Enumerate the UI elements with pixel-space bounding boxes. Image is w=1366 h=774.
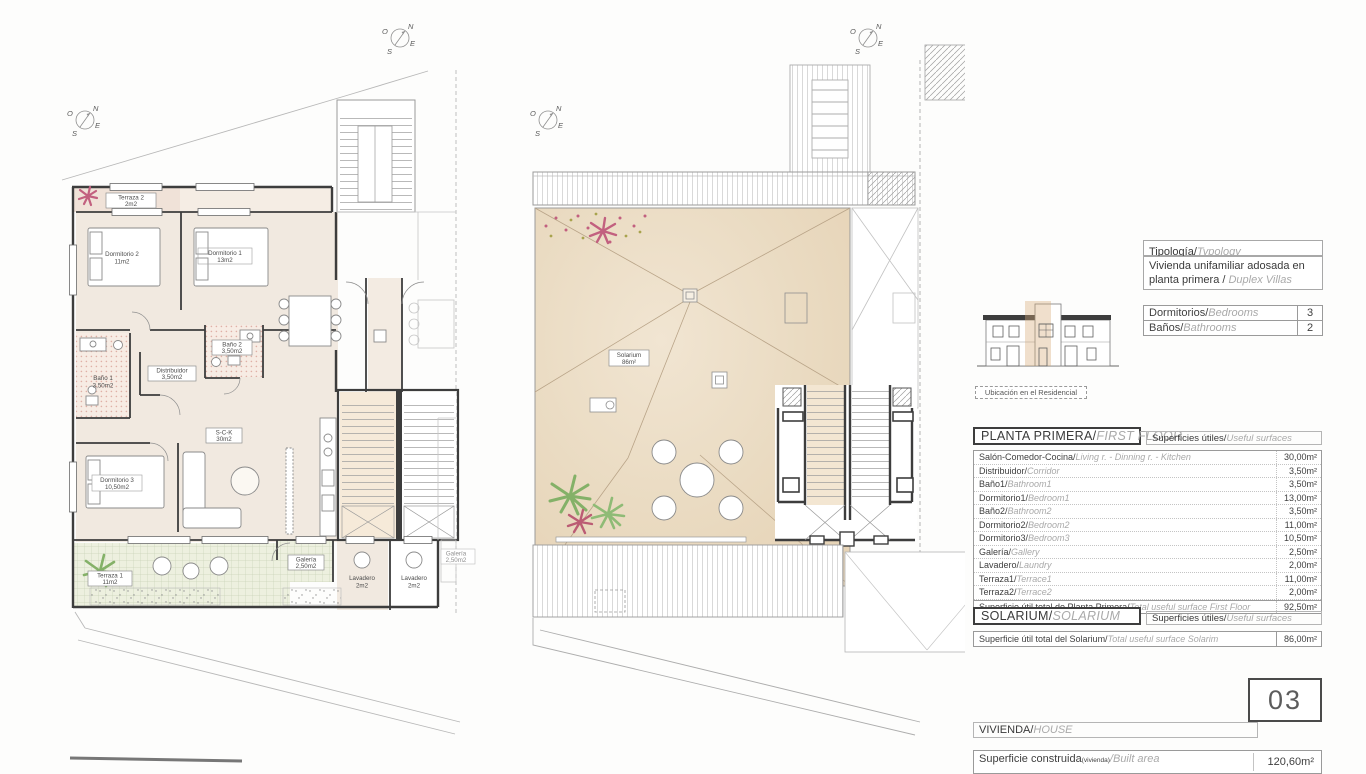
table-row: Galería/Gallery2,50m² (974, 546, 1321, 560)
shaft-hatch-left (783, 388, 801, 406)
house-header-es: VIVIENDA/ (979, 724, 1033, 736)
label-terraza1: Terraza 1 11m2 (88, 571, 132, 586)
plan-first-floor: Terraza 2 2m2 Dormitorio 2 11m2 Dormitor… (62, 70, 475, 761)
svg-text:E: E (95, 121, 101, 130)
shelf-icon (286, 448, 293, 534)
first-floor-surfaces-label: Superficies útiles/Useful surfaces (1146, 431, 1322, 445)
solarium-total-row: Superficie útil total del Solarium/Total… (974, 632, 1321, 646)
svg-text:N: N (408, 22, 414, 31)
entrance-stair (337, 100, 415, 212)
stair-left-steps (342, 400, 394, 504)
dining-table-icon (279, 296, 341, 346)
table-row: Salón-Comedor-Cocina/Living r. - Dinning… (974, 451, 1321, 465)
bathrooms-label-es: Baños/ (1149, 322, 1183, 334)
svg-text:Lavadero: Lavadero (349, 575, 375, 582)
compass-icon: N O E S (530, 104, 564, 138)
location-caption: Ubicación en el Residencial (975, 386, 1087, 399)
svg-text:2m2: 2m2 (408, 583, 421, 590)
roof-louvre-band (533, 172, 915, 205)
table-row: Dormitorio3/Bedroom310,50m² (974, 532, 1321, 546)
table-row: Distribuidor/Corridor3,50m² (974, 465, 1321, 479)
compass-icon: N O E S (382, 22, 416, 56)
table-row: Baño2/Bathroom23,50m² (974, 505, 1321, 519)
svg-text:2,50m2: 2,50m2 (296, 563, 317, 570)
svg-text:N: N (876, 22, 882, 31)
svg-text:2,50m2: 2,50m2 (446, 557, 467, 564)
svg-text:O: O (850, 27, 856, 36)
svg-text:E: E (410, 39, 416, 48)
svg-text:30m2: 30m2 (216, 436, 232, 443)
stair-right-steps (404, 400, 454, 504)
surfaces-en: Useful surfaces (1226, 433, 1291, 444)
svg-text:Lavadero: Lavadero (401, 575, 427, 582)
svg-text:S: S (72, 129, 77, 138)
first-floor-table: Salón-Comedor-Cocina/Living r. - Dinning… (973, 450, 1322, 614)
ground-line (70, 758, 242, 761)
svg-text:3,50m2: 3,50m2 (93, 383, 114, 390)
svg-text:Dormitorio 3: Dormitorio 3 (100, 477, 134, 484)
building-elevation-icon (973, 296, 1123, 376)
house-header: VIVIENDA/HOUSE (973, 722, 1258, 738)
counts-table: Dormitorios/Bedrooms 3 Baños/Bathrooms 2 (1143, 305, 1323, 336)
svg-text:3,50m2: 3,50m2 (222, 348, 243, 355)
first-floor-header: PLANTA PRIMERA/FIRST FLOOR (973, 427, 1141, 445)
planter (90, 588, 220, 605)
typology-line2-es: planta primera / (1149, 274, 1228, 286)
solarium-stairs (775, 385, 917, 546)
svg-text:O: O (382, 27, 388, 36)
table-row: Lavadero/Laundry2,00m² (974, 559, 1321, 573)
planter2 (283, 588, 341, 605)
bathrooms-label-en: Bathrooms (1183, 322, 1236, 334)
solarium-header-en: SOLARIUM (1052, 609, 1120, 623)
svg-text:N: N (556, 104, 562, 113)
typology-header: Tipología/Typology (1143, 240, 1323, 256)
svg-text:Baño 1: Baño 1 (93, 375, 113, 382)
svg-text:S: S (535, 129, 540, 138)
rug-icon (231, 467, 259, 495)
washer2-icon (406, 552, 422, 568)
built-area-sub: (vivienda) (1082, 757, 1110, 764)
label-bano1: Baño 1 3,50m2 (93, 375, 114, 390)
label-galeria: Galería 2,50m2 (288, 555, 324, 570)
compass-icon: N O E S (850, 22, 884, 56)
svg-text:Dormitorio 1: Dormitorio 1 (208, 250, 242, 257)
compass-icon: N O E S (67, 104, 101, 138)
table-row: Terraza1/Terrace111,00m² (974, 573, 1321, 587)
label-solarium: Solarium 86m² (609, 350, 649, 366)
label-galeria-b: Galería 2,50m2 (441, 549, 475, 564)
built-area-value: 120,60m² (1253, 753, 1316, 771)
bathrooms-count: 2 (1297, 321, 1322, 335)
svg-text:Dormitorio 2: Dormitorio 2 (105, 251, 139, 258)
svg-text:Solarium: Solarium (617, 352, 641, 359)
first-floor-header-es: PLANTA PRIMERA/ (981, 429, 1096, 443)
svg-text:O: O (530, 109, 536, 118)
compass-roses: N O E S N O E S N O E S N O (67, 22, 884, 138)
label-terraza2: Terraza 2 2m2 (106, 193, 156, 208)
bathrooms-row: Baños/Bathrooms 2 (1143, 320, 1323, 336)
lower-deck (533, 537, 965, 652)
label-sck: S-C-K 30m2 (206, 428, 242, 443)
bedrooms-label-es: Dormitorios/ (1149, 307, 1208, 319)
house-header-en: HOUSE (1033, 724, 1072, 736)
svg-text:13m2: 13m2 (217, 257, 233, 264)
label-distribuidor: Distribuidor 3,50m2 (148, 366, 196, 381)
unit-number-text: 03 (1268, 685, 1302, 716)
solarium-table: Superficie útil total del Solarium/Total… (973, 631, 1322, 647)
svg-text:E: E (558, 121, 564, 130)
solarium-surfaces-es: Superficies útiles/ (1152, 613, 1226, 624)
floor-plans-drawing: Terraza 2 2m2 Dormitorio 2 11m2 Dormitor… (0, 0, 965, 768)
neighbor-solarium (852, 208, 918, 408)
unit-number-badge: 03 (1248, 678, 1322, 722)
svg-text:86m²: 86m² (622, 359, 636, 366)
table-row: Dormitorio2/Bedroom211,00m² (974, 519, 1321, 533)
built-area-es: Superficie construida (979, 753, 1082, 765)
location-caption-text: Ubicación en el Residencial (985, 388, 1077, 397)
table-row: Baño1/Bathroom13,50m² (974, 478, 1321, 492)
architectural-sheet: Terraza 2 2m2 Dormitorio 2 11m2 Dormitor… (0, 0, 1366, 768)
svg-text:O: O (67, 109, 73, 118)
svg-text:11m2: 11m2 (102, 579, 118, 586)
shaft-hatch-right (893, 388, 911, 406)
kitchen-counter-icon (320, 418, 336, 536)
built-area-en: /Built area (1110, 753, 1160, 765)
table-row: Dormitorio1/Bedroom113,00m² (974, 492, 1321, 506)
label-bano2: Baño 2 3,50m2 (212, 340, 252, 355)
corridor-shaft (374, 330, 386, 342)
table-row: Terraza2/Terrace22,00m² (974, 586, 1321, 600)
svg-text:2m2: 2m2 (356, 583, 369, 590)
typology-value: Vivienda unifamiliar adosada en planta p… (1143, 256, 1323, 290)
typology-line2-en: Duplex Villas (1228, 274, 1291, 286)
plan-solarium: Solarium 86m² (533, 45, 965, 735)
typology-line1: Vivienda unifamiliar adosada en (1149, 259, 1317, 273)
solarium-surfaces-en: Useful surfaces (1226, 613, 1291, 624)
bedrooms-row: Dormitorios/Bedrooms 3 (1143, 305, 1323, 320)
svg-text:3,50m2: 3,50m2 (162, 374, 183, 381)
svg-text:S: S (387, 47, 392, 56)
solarium-header: SOLARIUM/SOLARIUM (973, 607, 1141, 625)
solarium-header-es: SOLARIUM/ (981, 609, 1052, 623)
surfaces-es: Superficies útiles/ (1152, 433, 1226, 444)
bedrooms-count: 3 (1297, 306, 1322, 320)
washer1-icon (354, 552, 370, 568)
bedrooms-label-en: Bedrooms (1208, 307, 1258, 319)
svg-text:N: N (93, 104, 99, 113)
built-area-row: Superficie construida(vivienda)/Built ar… (973, 750, 1322, 774)
label-dormitorio3: Dormitorio 3 10,50m2 (92, 475, 142, 491)
svg-text:S: S (855, 47, 860, 56)
solarium-surfaces-label: Superficies útiles/Useful surfaces (1146, 611, 1322, 625)
svg-text:11m2: 11m2 (114, 259, 130, 266)
svg-text:2m2: 2m2 (125, 201, 138, 208)
svg-text:10,50m2: 10,50m2 (105, 484, 130, 491)
svg-text:E: E (878, 39, 884, 48)
